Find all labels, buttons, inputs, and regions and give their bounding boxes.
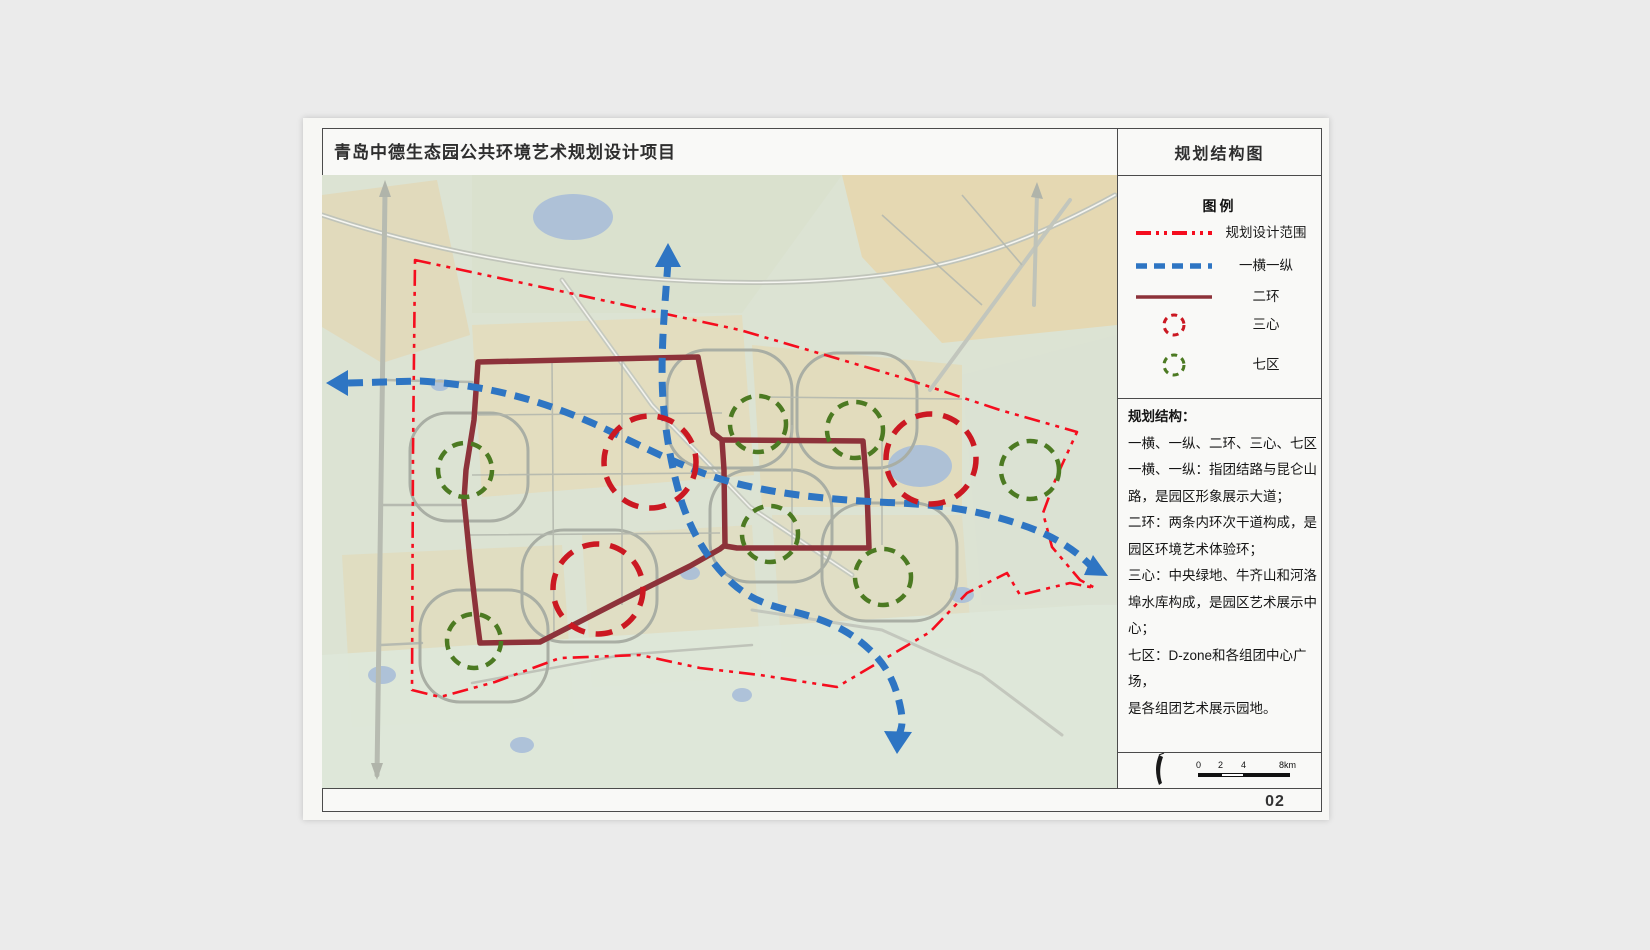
green-dashed-circle-icon xyxy=(1133,352,1215,378)
legend-label: 二环 xyxy=(1217,284,1315,310)
footer-rule xyxy=(322,788,1322,789)
maroon-solid-line-icon xyxy=(1133,284,1215,310)
red-dashed-circle-icon xyxy=(1133,312,1215,338)
legend-item-boundary: 规划设计范围 xyxy=(1125,220,1315,246)
structure-body: 一横、一纵、二环、三心、七区 一横、一纵：指团结路与昆仑山 路，是园区形象展示大… xyxy=(1128,431,1320,723)
legend-title: 图例 xyxy=(1117,196,1322,216)
legend-item-routes: 一横一纵 xyxy=(1125,253,1315,279)
red-dashdot-line-icon xyxy=(1133,220,1215,246)
legend-item-zones: 七区 xyxy=(1125,352,1315,378)
scale-segment xyxy=(1221,773,1244,777)
page-number: 02 xyxy=(1240,793,1310,811)
blue-dashed-line-icon xyxy=(1133,253,1215,279)
legend-label: 一横一纵 xyxy=(1217,253,1315,279)
structure-heading: 规划结构： xyxy=(1128,404,1320,431)
scale-label: 0 xyxy=(1196,760,1201,770)
legend-item-centers: 三心 xyxy=(1125,312,1315,338)
legend-label: 规划设计范围 xyxy=(1217,220,1315,246)
project-title: 青岛中德生态园公共环境艺术规划设计项目 xyxy=(334,138,1114,164)
scale-segment xyxy=(1198,773,1221,777)
panel-divider xyxy=(1117,128,1118,788)
scale-label: 8km xyxy=(1279,760,1296,770)
legend-rule xyxy=(1117,398,1322,399)
legend-label: 七区 xyxy=(1217,352,1315,378)
map-canvas xyxy=(322,175,1117,788)
structure-notes: 规划结构： 一横、一纵、二环、三心、七区 一横、一纵：指团结路与昆仑山 路，是园… xyxy=(1128,404,1320,722)
sheet-title: 规划结构图 xyxy=(1117,140,1322,164)
screenshot-root: { "header": { "project_title": "青岛中德生态园公… xyxy=(0,0,1650,950)
legend-label: 三心 xyxy=(1217,312,1315,338)
scale-label: 4 xyxy=(1241,760,1246,770)
legend-item-ring: 二环 xyxy=(1125,284,1315,310)
scale-label: 2 xyxy=(1218,760,1223,770)
scale-segment xyxy=(1244,773,1290,777)
scale-bar: 0 2 4 8km xyxy=(1117,752,1322,788)
